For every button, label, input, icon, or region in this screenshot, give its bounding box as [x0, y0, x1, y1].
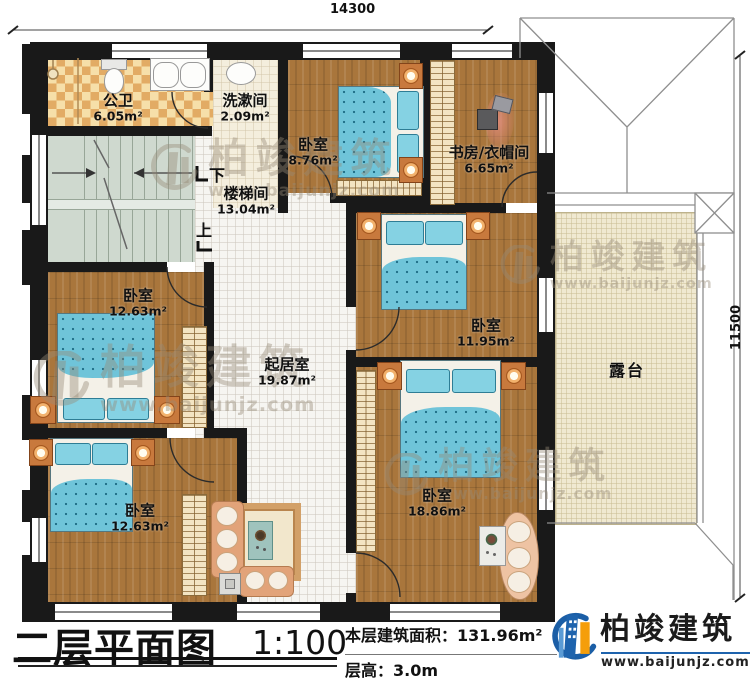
window — [537, 93, 555, 153]
wardrobe — [430, 60, 455, 205]
room-label-living: 起居室19.87m² — [258, 357, 316, 388]
desk — [479, 526, 506, 566]
wall — [214, 428, 247, 438]
wall — [30, 262, 167, 272]
window — [452, 42, 512, 60]
window — [390, 602, 500, 622]
room-label-stairhall: 楼梯间13.04m² — [217, 186, 275, 217]
wall-pilaster — [22, 555, 30, 622]
nightstand — [131, 439, 155, 466]
sink-basin — [180, 62, 206, 88]
nightstand — [377, 362, 402, 390]
floor-area-text: 本层建筑面积：131.96m² — [345, 622, 542, 646]
window — [237, 602, 320, 622]
floor-height-text: 层高：3.0m — [345, 657, 438, 679]
window — [30, 360, 48, 400]
room-label-terrace: 露台 — [609, 362, 645, 380]
nightstand — [466, 212, 490, 240]
room-label-bedroom-right: 卧室11.95m² — [457, 318, 515, 349]
wall — [346, 593, 356, 602]
bed — [381, 214, 467, 310]
stairs-down-label: 下 — [209, 162, 225, 186]
sink-basin — [153, 62, 179, 88]
bed — [57, 313, 155, 423]
brand-name: 柏竣建筑 — [600, 615, 736, 645]
wash-basin — [226, 62, 256, 85]
wall — [278, 58, 288, 213]
window — [30, 518, 48, 562]
window — [303, 42, 400, 60]
wall — [30, 126, 212, 136]
wall-pilaster — [22, 230, 30, 285]
wall — [346, 350, 356, 357]
brand-logo-icon — [543, 607, 599, 675]
brand-url: www.baijunjz.com — [601, 652, 750, 670]
wall-pilaster — [22, 395, 30, 440]
wardrobe — [182, 494, 207, 596]
stair-mid-landing — [48, 199, 195, 210]
title-underline-2 — [18, 665, 337, 667]
coffee-table — [248, 521, 273, 560]
room-label-bath: 公卫6.05m² — [93, 93, 142, 124]
room-label-study: 书房/衣帽间6.65m² — [449, 145, 529, 176]
window — [30, 135, 48, 225]
nightstand — [399, 63, 423, 89]
dimension-top: 14300 — [330, 2, 375, 17]
wall — [30, 428, 167, 438]
wall — [346, 213, 356, 307]
wall-pilaster — [22, 490, 30, 522]
floorplan-canvas: 柏竣建筑www.baijunjz.com 柏竣建筑www.baijunjz.co… — [0, 0, 750, 679]
wardrobe — [182, 326, 207, 428]
wall — [346, 367, 356, 553]
titleblock-divider — [345, 654, 557, 655]
sofa — [239, 566, 294, 597]
room-label-bedroom-bottom-left: 卧室12.63m² — [111, 503, 169, 534]
wall-pilaster — [22, 155, 30, 203]
room-label-bedroom-mid-left: 卧室12.63m² — [109, 288, 167, 319]
toilet-icon — [104, 68, 124, 94]
nightstand — [357, 212, 381, 240]
room-label-bedroom-top: 卧室8.76m² — [288, 137, 337, 168]
nightstand — [29, 439, 53, 466]
dimension-right: 11500 — [729, 305, 744, 350]
side-table — [219, 573, 241, 595]
nightstand — [399, 157, 423, 183]
window — [537, 278, 555, 332]
title-underline — [18, 657, 337, 660]
nightstand — [501, 362, 526, 390]
window — [537, 450, 555, 510]
nightstand — [154, 396, 180, 424]
sofa — [211, 501, 244, 578]
room-label-bedroom-big: 卧室18.86m² — [408, 488, 466, 519]
wall-pilaster — [22, 44, 30, 114]
computer-monitor-icon — [477, 109, 498, 130]
nightstand — [30, 396, 56, 424]
stairs-up-label: 上 — [196, 217, 212, 241]
wardrobe — [356, 370, 376, 552]
room-label-wash: 洗漱间2.09m² — [220, 93, 269, 124]
bed — [400, 360, 501, 478]
